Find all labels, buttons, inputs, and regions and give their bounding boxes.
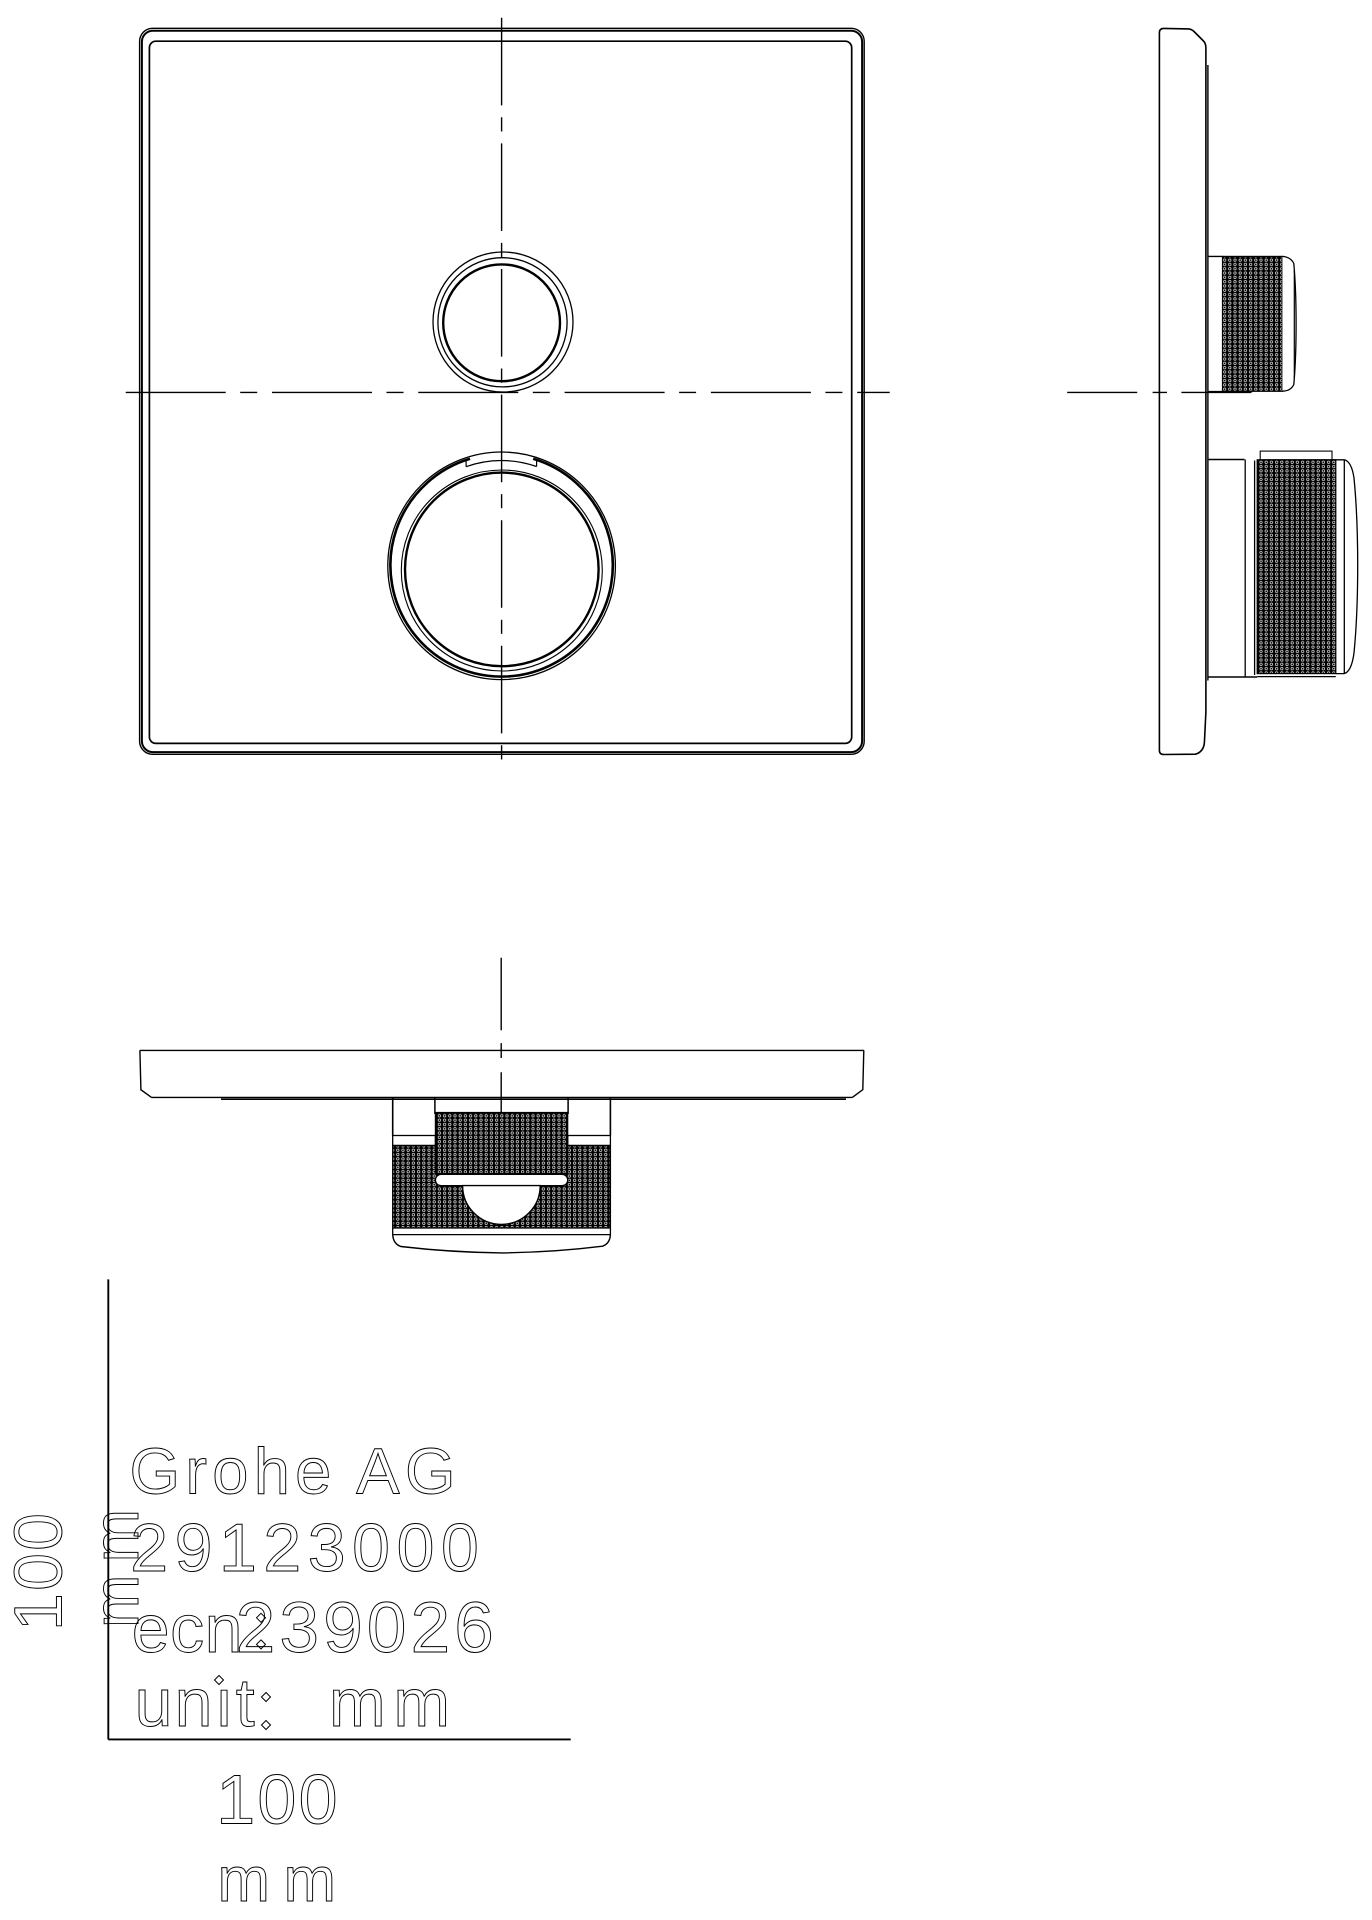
svg-text:unıt: unıt — [135, 1665, 255, 1741]
svg-text:100: 100 — [216, 1761, 337, 1839]
svg-text:100: 100 — [1, 1513, 77, 1631]
